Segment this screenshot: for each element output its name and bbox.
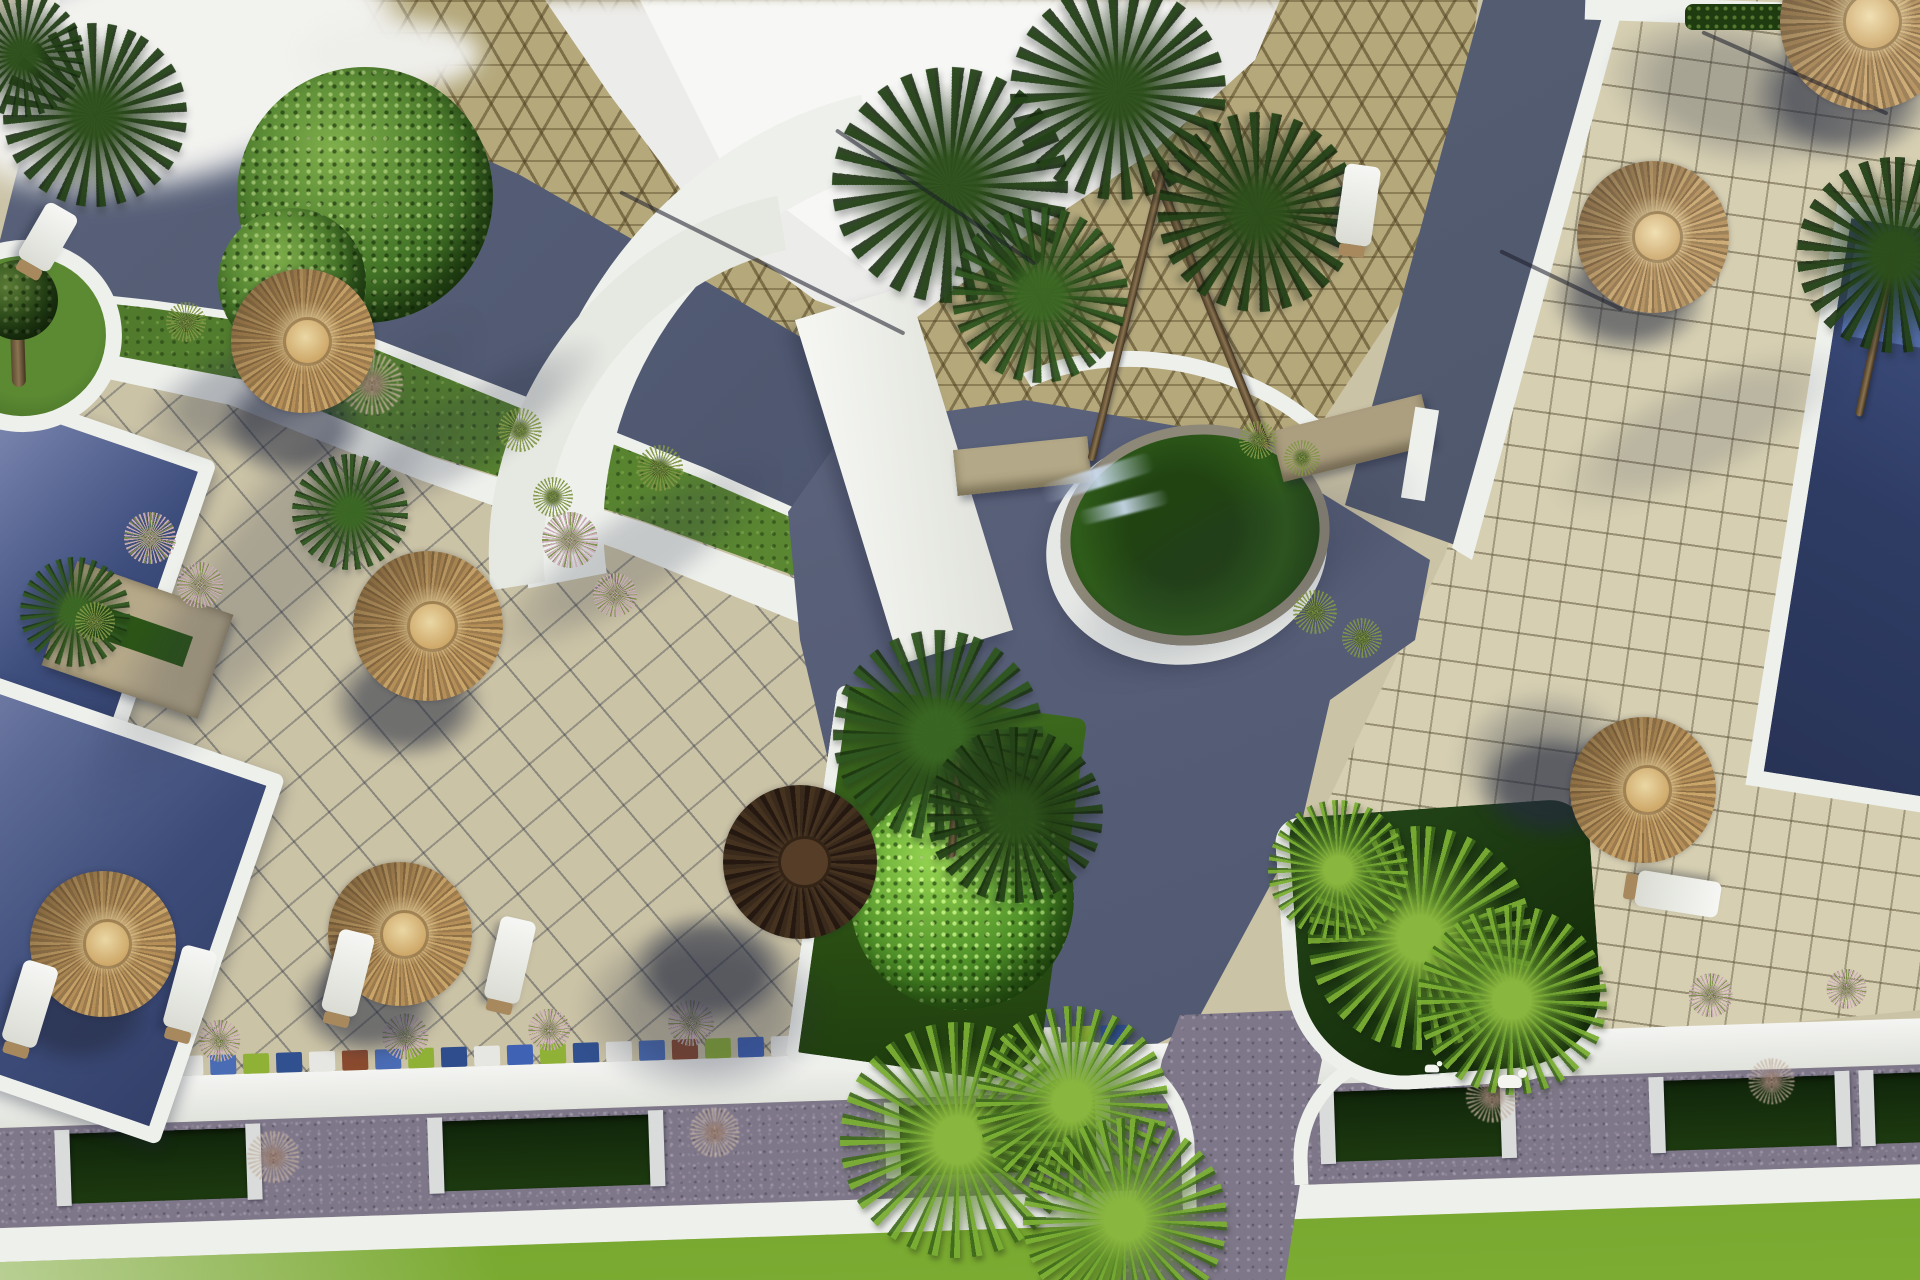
grass-tuft — [637, 445, 683, 491]
mosaic-tile — [474, 1045, 501, 1066]
grass-tuft — [593, 573, 637, 617]
mosaic-tile — [507, 1044, 534, 1065]
promenade-planter-box — [440, 1114, 652, 1191]
straw-parasol — [231, 269, 375, 413]
white-dog — [1425, 1065, 1439, 1073]
grass-tuft — [1688, 973, 1733, 1018]
grass-tuft — [75, 602, 115, 642]
straw-parasol — [353, 551, 503, 701]
grass-tuft — [1342, 618, 1382, 658]
grass-tuft — [498, 408, 542, 452]
mosaic-tile — [276, 1052, 303, 1073]
grass-tuft — [1826, 968, 1867, 1009]
straw-parasol — [1577, 161, 1729, 313]
mosaic-tile — [441, 1047, 468, 1068]
promenade-planter-box — [1871, 1072, 1920, 1144]
straw-parasol — [723, 785, 877, 939]
aerial-resort-render — [0, 0, 1920, 1280]
mosaic-tile — [243, 1053, 270, 1074]
white-dog — [1498, 1075, 1522, 1088]
fan-palm — [1268, 800, 1408, 940]
fan-palm — [1417, 905, 1607, 1095]
grass-tuft — [166, 302, 206, 342]
grass-tuft — [124, 512, 176, 564]
straw-parasol — [1570, 717, 1716, 863]
grass-tuft — [1239, 421, 1277, 459]
grass-tuft — [177, 562, 223, 608]
straw-parasol — [30, 871, 176, 1017]
grass-tuft — [542, 512, 598, 568]
mosaic-tile — [309, 1051, 336, 1072]
grass-tuft — [1293, 590, 1337, 634]
grass-tuft — [1284, 440, 1320, 476]
grass-tuft — [533, 477, 573, 517]
